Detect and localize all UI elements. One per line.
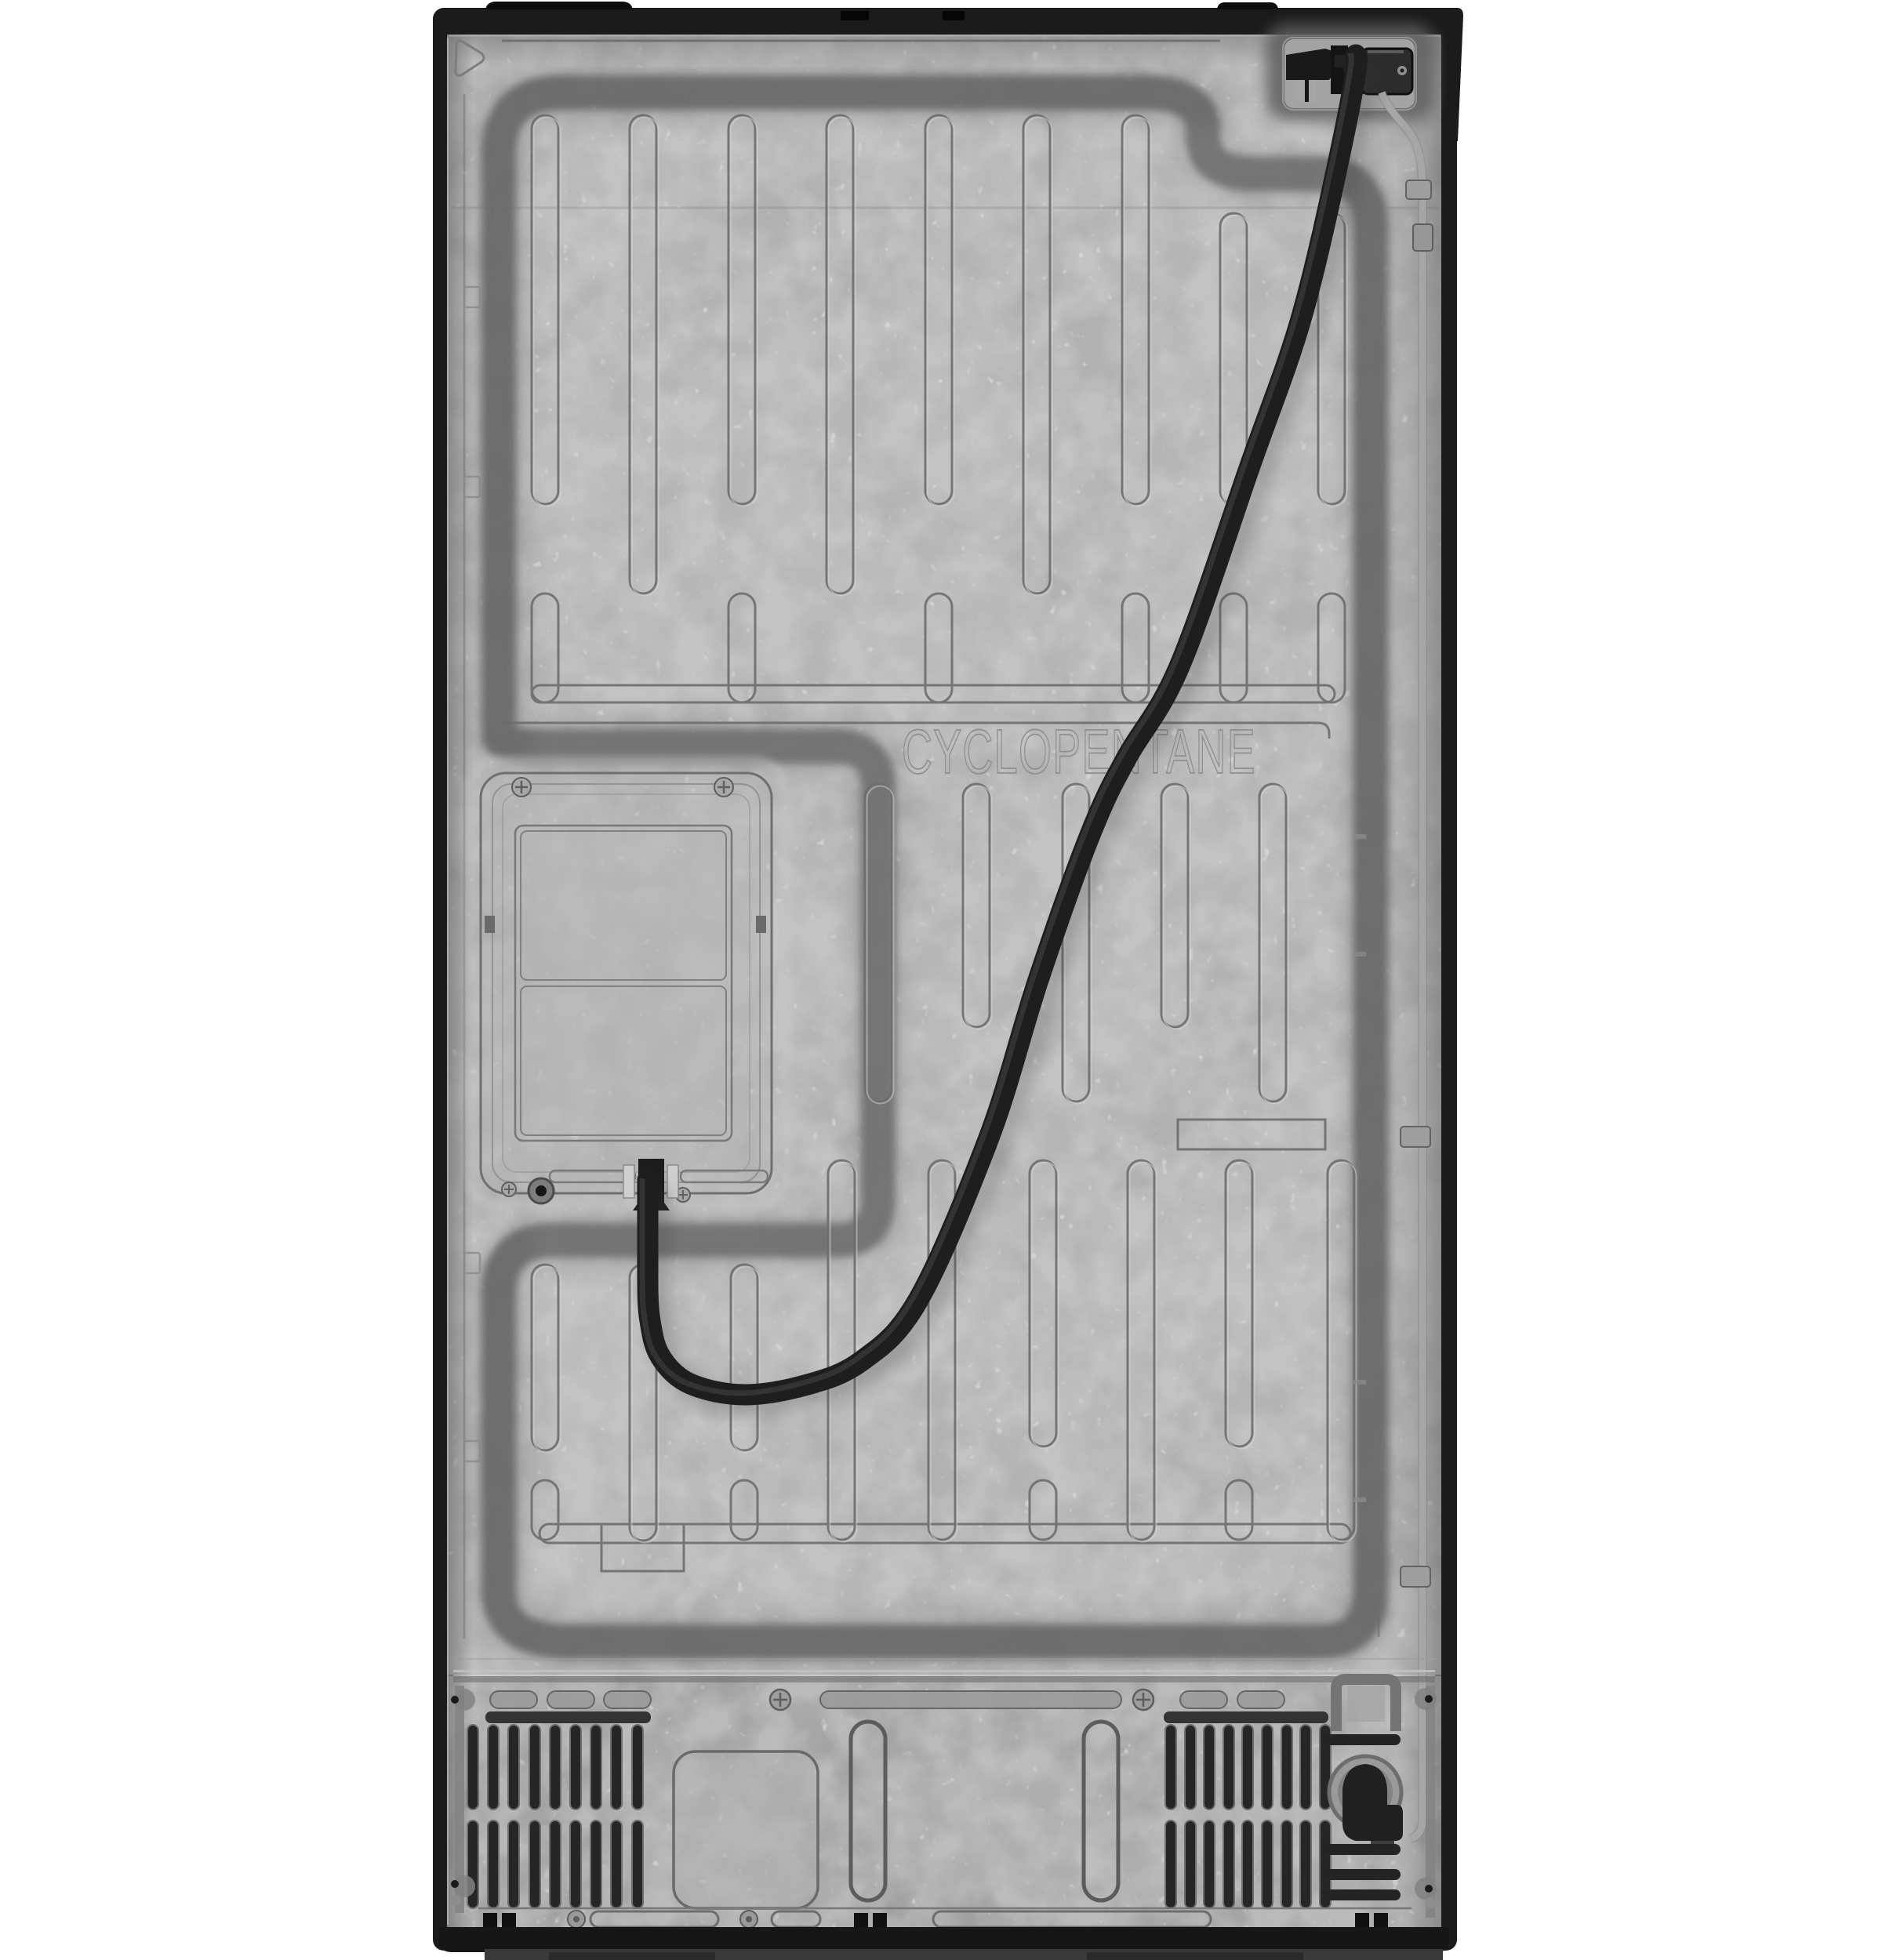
svg-text:CYCLOPENTANE: CYCLOPENTANE [902,717,1256,786]
